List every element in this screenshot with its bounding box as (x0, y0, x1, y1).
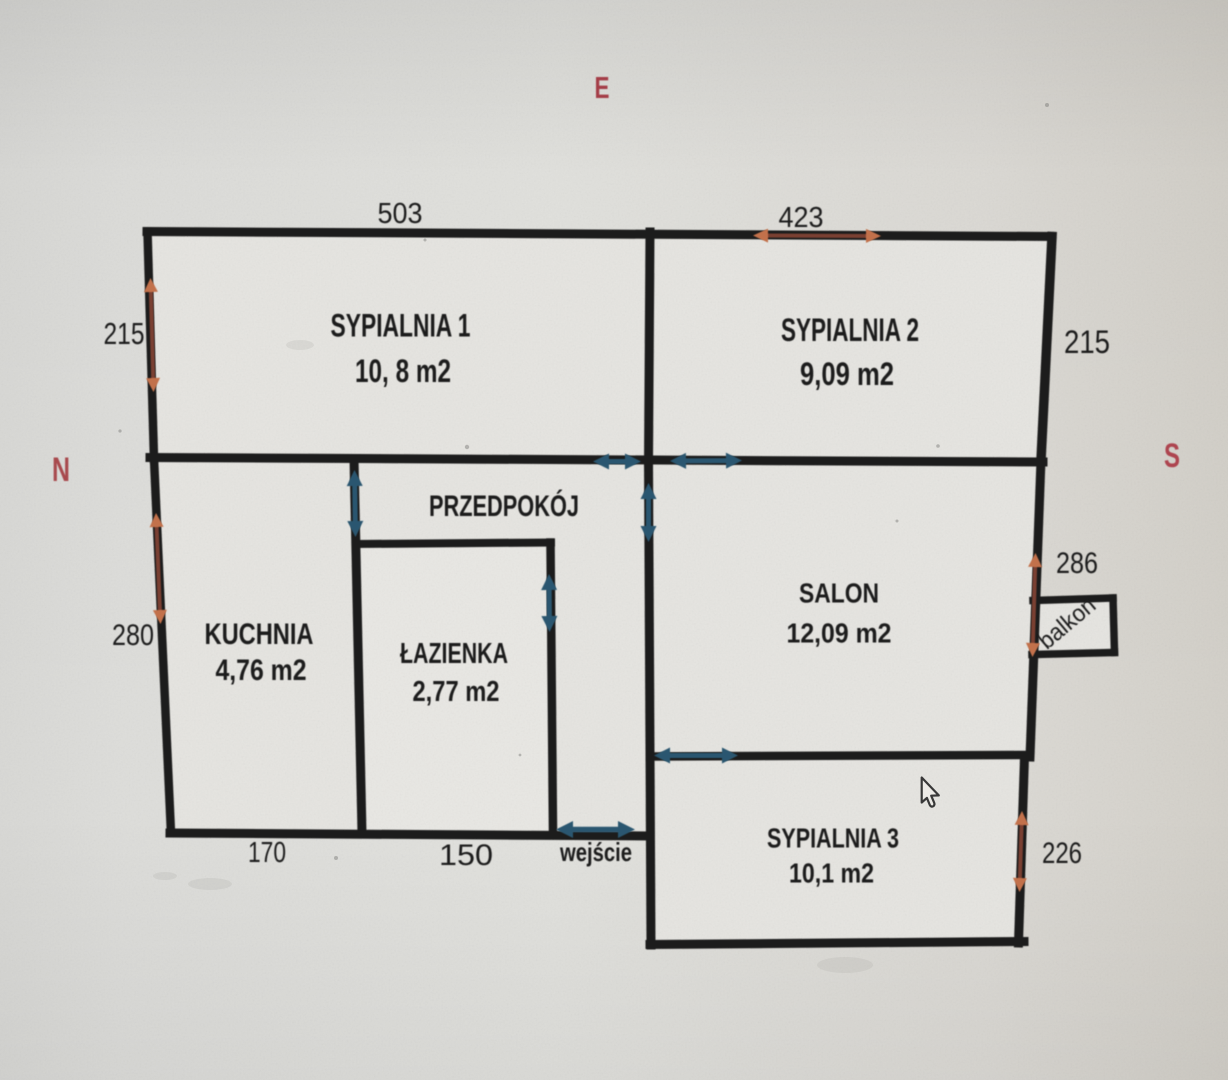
svg-text:215: 215 (104, 316, 145, 351)
svg-text:150: 150 (439, 839, 493, 872)
svg-text:226: 226 (1042, 837, 1082, 870)
svg-text:12,09 m2: 12,09 m2 (787, 618, 892, 649)
svg-text:SYPIALNIA 1: SYPIALNIA 1 (331, 308, 471, 344)
svg-text:SYPIALNIA 2: SYPIALNIA 2 (781, 312, 919, 348)
svg-text:286: 286 (1056, 547, 1098, 580)
svg-text:423: 423 (779, 202, 824, 234)
svg-text:10,1 m2: 10,1 m2 (789, 858, 874, 889)
svg-text:4,76 m2: 4,76 m2 (216, 654, 307, 687)
svg-text:S: S (1164, 437, 1180, 475)
svg-text:10, 8 m2: 10, 8 m2 (355, 353, 451, 389)
svg-text:170: 170 (248, 837, 286, 869)
svg-text:SALON: SALON (799, 578, 879, 609)
svg-text:PRZEDPOKÓJ: PRZEDPOKÓJ (429, 489, 579, 523)
svg-text:ŁAZIENKA: ŁAZIENKA (400, 638, 508, 670)
svg-text:wejście: wejście (559, 837, 632, 867)
svg-text:215: 215 (1064, 324, 1110, 360)
svg-text:SYPIALNIA 3: SYPIALNIA 3 (767, 823, 899, 854)
svg-text:2,77 m2: 2,77 m2 (413, 676, 500, 708)
svg-text:280: 280 (112, 619, 154, 652)
svg-text:503: 503 (378, 198, 423, 230)
svg-text:KUCHNIA: KUCHNIA (205, 618, 314, 651)
svg-text:9,09 m2: 9,09 m2 (800, 356, 894, 392)
svg-text:N: N (52, 451, 70, 489)
svg-text:E: E (595, 70, 610, 105)
